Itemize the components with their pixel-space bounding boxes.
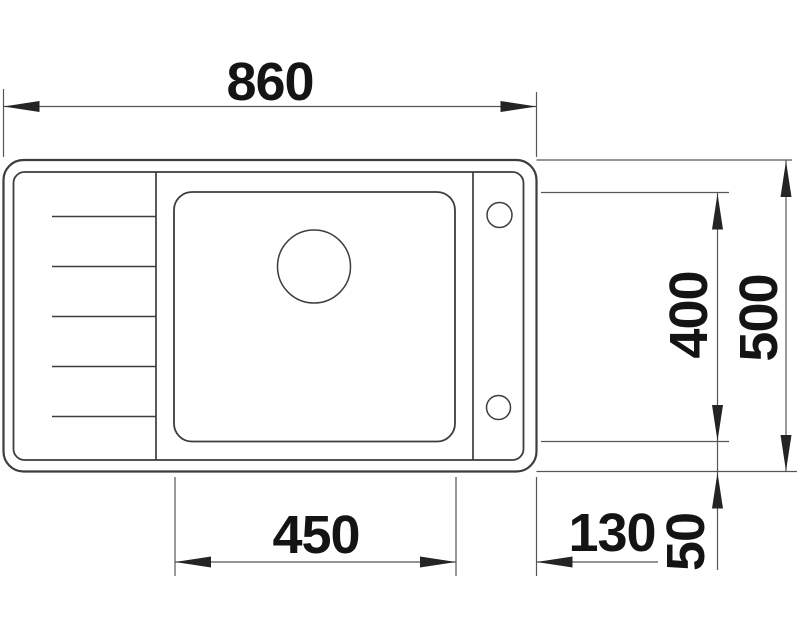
arrowhead-left (175, 557, 211, 568)
dimension-labels: 860 450 130 400 500 50 (226, 52, 789, 571)
drawing-svg: 860 450 130 400 500 50 (0, 0, 800, 640)
dim-label-basin-depth: 400 (659, 271, 719, 358)
sink-outer-outline (4, 160, 537, 472)
arrowhead-left-outside (537, 557, 573, 568)
tap-hole-top (487, 203, 512, 228)
arrowhead-up-outside (712, 473, 723, 509)
sink-plan (4, 160, 537, 472)
arrowhead-up (712, 194, 723, 230)
arrowhead-right (420, 557, 456, 568)
arrowhead-left (4, 101, 40, 112)
dim-label-basin-width: 450 (272, 505, 359, 565)
technical-drawing: 860 450 130 400 500 50 (0, 0, 800, 640)
dim-label-tap-ledge-width: 130 (568, 503, 655, 563)
dim-label-rim-offset: 50 (656, 513, 716, 571)
tap-hole-bottom (487, 396, 511, 420)
dim-label-total-width: 860 (226, 52, 313, 112)
arrowhead-up (781, 161, 792, 197)
arrowhead-right (501, 101, 537, 112)
arrowhead-down (712, 405, 723, 441)
dim-label-total-depth: 500 (729, 274, 789, 361)
arrowhead-down (781, 435, 792, 471)
drain-hole (278, 230, 351, 303)
